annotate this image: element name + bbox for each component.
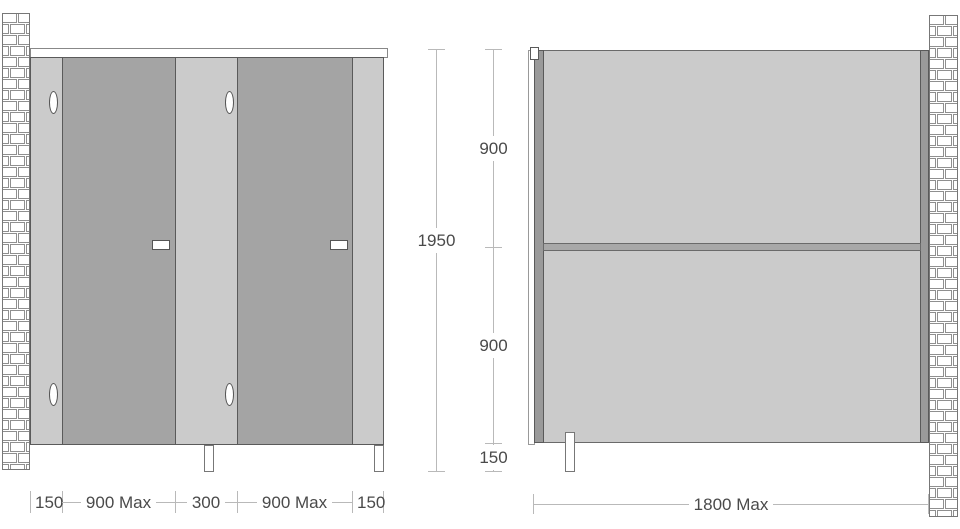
dim-label-900max-right: 900 Max: [257, 494, 332, 511]
cubicle-door-2: [237, 57, 353, 445]
overall-height-dimension: 1950: [428, 49, 445, 472]
dim-label-1800max: 1800 Max: [689, 496, 774, 513]
cubicle-drawing-canvas: 150 900 Max 300 900 Max 150: [0, 0, 960, 529]
post-top-cap: [530, 47, 539, 60]
brick-wall-left: [2, 13, 30, 470]
end-pilaster-left: [30, 57, 63, 445]
hinge-icon-top-2: [225, 91, 234, 114]
hinge-icon-bottom-1: [49, 383, 58, 406]
dim-label-300: 300: [187, 494, 225, 511]
dim-label-150-right: 150: [352, 494, 390, 511]
divider-mid-rail: [543, 243, 921, 251]
divider-post-rear: [920, 50, 929, 443]
side-width-dimension: 1800 Max: [533, 494, 929, 514]
segment-height-dimension: 900 900 150: [485, 49, 502, 472]
leg-side: [565, 432, 575, 472]
dim-label-1950: 1950: [418, 228, 456, 253]
lock-icon-door-2: [330, 240, 348, 250]
lock-icon-door-1: [152, 240, 170, 250]
hinge-icon-bottom-2: [225, 383, 234, 406]
leg-front-1: [204, 445, 214, 472]
dim-label-150-height: 150: [479, 445, 507, 470]
dim-label-900max-left: 900 Max: [81, 494, 156, 511]
dim-label-900-top: 900: [479, 136, 507, 161]
cubicle-door-1: [62, 57, 176, 445]
dim-label-900-bottom: 900: [479, 333, 507, 358]
front-width-dimension: 150 900 Max 300 900 Max 150: [30, 491, 384, 513]
end-pilaster-right: [352, 57, 384, 445]
hinge-icon-top-1: [49, 91, 58, 114]
front-panel-run: [30, 57, 384, 445]
leg-front-2: [374, 445, 384, 472]
brick-wall-right: [929, 15, 958, 517]
